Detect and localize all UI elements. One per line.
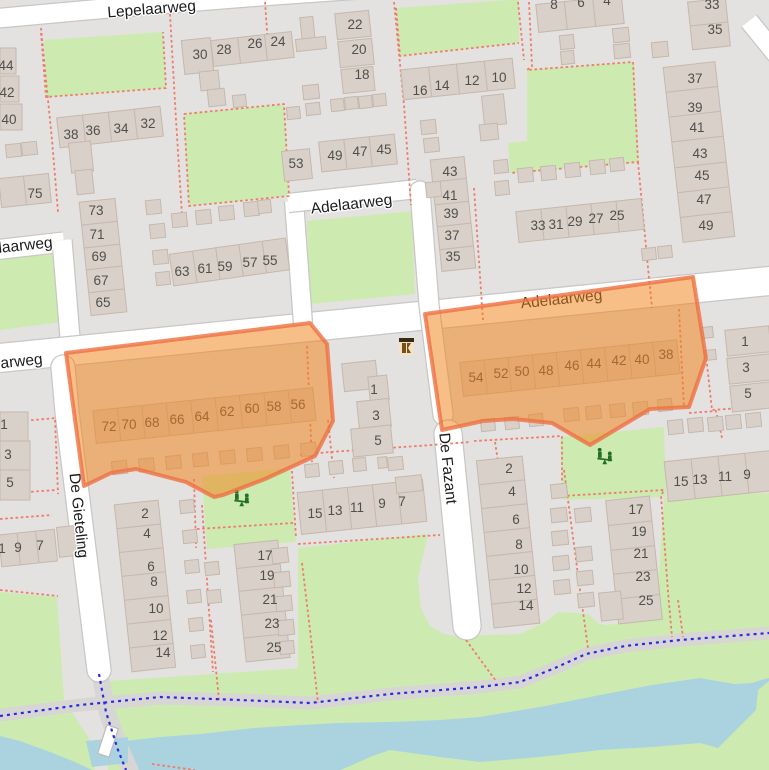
- svg-text:17: 17: [257, 548, 272, 563]
- svg-text:14: 14: [518, 598, 534, 613]
- svg-text:57: 57: [242, 255, 257, 270]
- svg-text:53: 53: [288, 156, 303, 171]
- svg-text:4: 4: [143, 526, 151, 541]
- svg-text:21: 21: [262, 592, 277, 607]
- svg-text:25: 25: [266, 640, 281, 655]
- svg-text:1: 1: [370, 382, 378, 397]
- svg-text:8: 8: [515, 537, 523, 552]
- svg-text:10: 10: [148, 601, 163, 616]
- svg-text:37: 37: [444, 228, 459, 243]
- svg-text:14: 14: [434, 78, 450, 93]
- svg-text:21: 21: [633, 546, 648, 561]
- svg-text:4: 4: [508, 484, 516, 499]
- svg-text:69: 69: [91, 249, 106, 264]
- svg-text:33: 33: [530, 218, 545, 233]
- svg-text:65: 65: [95, 295, 110, 310]
- svg-text:40: 40: [1, 112, 16, 127]
- svg-text:25: 25: [609, 208, 624, 223]
- svg-text:12: 12: [464, 73, 479, 88]
- svg-text:6: 6: [512, 512, 520, 527]
- svg-text:75: 75: [27, 186, 42, 201]
- svg-text:47: 47: [696, 192, 711, 207]
- svg-text:5: 5: [374, 433, 382, 448]
- svg-text:20: 20: [351, 42, 366, 57]
- svg-text:5: 5: [6, 475, 14, 490]
- svg-text:13: 13: [692, 472, 707, 487]
- svg-text:49: 49: [698, 218, 713, 233]
- svg-text:29: 29: [567, 214, 582, 229]
- svg-text:16: 16: [412, 83, 427, 98]
- svg-text:67: 67: [93, 273, 108, 288]
- svg-text:36: 36: [85, 123, 100, 138]
- svg-text:61: 61: [197, 261, 212, 276]
- svg-text:43: 43: [692, 146, 707, 161]
- svg-text:37: 37: [687, 71, 702, 86]
- svg-text:19: 19: [259, 568, 274, 583]
- svg-text:43: 43: [442, 164, 457, 179]
- svg-text:6: 6: [577, 0, 585, 10]
- svg-text:1: 1: [0, 417, 8, 432]
- svg-text:73: 73: [88, 203, 103, 218]
- svg-text:8: 8: [550, 0, 558, 12]
- svg-text:49: 49: [327, 148, 342, 163]
- svg-text:9: 9: [14, 540, 22, 555]
- svg-text:17: 17: [628, 502, 643, 517]
- svg-text:13: 13: [327, 503, 342, 518]
- svg-text:39: 39: [687, 100, 702, 115]
- svg-text:3: 3: [372, 408, 380, 423]
- svg-text:9: 9: [743, 467, 751, 482]
- svg-text:3: 3: [4, 447, 12, 462]
- svg-text:71: 71: [89, 227, 104, 242]
- svg-text:9: 9: [378, 496, 386, 511]
- svg-text:38: 38: [63, 127, 78, 142]
- svg-text:39: 39: [443, 206, 458, 221]
- svg-text:31: 31: [548, 217, 563, 232]
- svg-text:15: 15: [673, 474, 688, 489]
- svg-text:10: 10: [491, 70, 506, 85]
- svg-text:23: 23: [264, 616, 279, 631]
- svg-text:18: 18: [354, 67, 369, 82]
- svg-text:10: 10: [513, 562, 528, 577]
- svg-text:30: 30: [192, 47, 207, 62]
- svg-text:7: 7: [398, 494, 406, 509]
- svg-text:3: 3: [742, 360, 750, 375]
- svg-text:11: 11: [718, 469, 732, 484]
- svg-text:59: 59: [217, 259, 232, 274]
- svg-text:32: 32: [140, 116, 155, 131]
- svg-text:14: 14: [155, 645, 171, 660]
- svg-text:2: 2: [141, 506, 149, 521]
- svg-text:2: 2: [505, 461, 513, 476]
- svg-text:41: 41: [689, 120, 704, 135]
- svg-text:55: 55: [262, 253, 277, 268]
- svg-text:5: 5: [744, 386, 752, 401]
- svg-text:11: 11: [350, 500, 364, 515]
- svg-text:42: 42: [0, 85, 15, 100]
- svg-text:25: 25: [638, 593, 653, 608]
- svg-text:44: 44: [0, 58, 14, 73]
- svg-text:12: 12: [516, 581, 531, 596]
- svg-text:35: 35: [707, 22, 722, 37]
- svg-text:47: 47: [352, 144, 367, 159]
- svg-text:45: 45: [376, 142, 391, 157]
- svg-text:27: 27: [588, 211, 603, 226]
- svg-text:7: 7: [36, 538, 44, 553]
- svg-text:1: 1: [0, 541, 6, 556]
- svg-text:33: 33: [704, 0, 719, 12]
- svg-text:1: 1: [741, 334, 749, 349]
- svg-text:22: 22: [347, 17, 362, 32]
- svg-text:24: 24: [270, 34, 286, 49]
- svg-text:34: 34: [113, 121, 129, 136]
- svg-text:41: 41: [442, 188, 457, 203]
- svg-text:23: 23: [635, 569, 650, 584]
- svg-text:35: 35: [445, 249, 460, 264]
- svg-text:6: 6: [147, 559, 155, 574]
- svg-text:26: 26: [247, 36, 262, 51]
- svg-text:4: 4: [603, 0, 611, 8]
- svg-text:28: 28: [216, 42, 231, 57]
- svg-text:15: 15: [307, 506, 322, 521]
- svg-text:12: 12: [152, 628, 167, 643]
- svg-text:63: 63: [174, 264, 189, 279]
- svg-text:19: 19: [631, 524, 646, 539]
- svg-text:8: 8: [150, 574, 158, 589]
- svg-text:45: 45: [694, 168, 709, 183]
